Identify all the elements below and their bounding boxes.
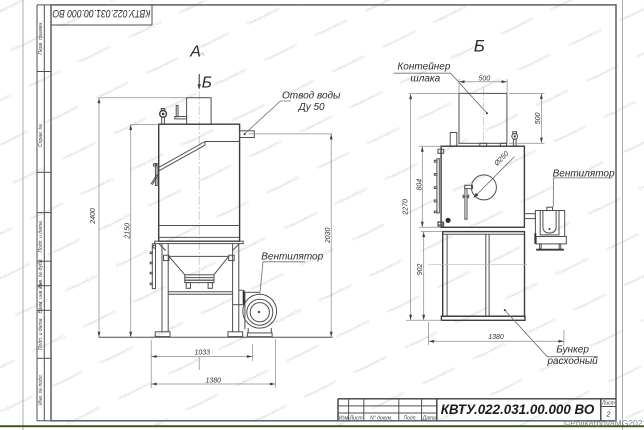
svg-text:1380: 1380 [206, 378, 222, 385]
svg-text:1380: 1380 [488, 334, 504, 341]
svg-text:шлака: шлака [410, 73, 440, 84]
svg-text:Лист: Лист [601, 401, 615, 407]
svg-text:А: А [189, 43, 201, 60]
svg-text:Контейнер: Контейнер [397, 62, 450, 73]
svg-text:500: 500 [535, 112, 542, 124]
svg-text:Ду 50: Ду 50 [298, 102, 325, 113]
svg-text:2270: 2270 [402, 199, 409, 216]
svg-text:1033: 1033 [195, 350, 211, 357]
svg-text:Перв. примен.: Перв. примен. [38, 21, 44, 54]
svg-text:902: 902 [417, 263, 424, 275]
svg-text:Отвод воды: Отвод воды [282, 90, 341, 101]
svg-text:Лист: Лист [349, 415, 363, 421]
svg-text:N° докум.: N° докум. [370, 415, 392, 421]
svg-text:КВТУ.022.031.00.000 ВО: КВТУ.022.031.00.000 ВО [52, 7, 150, 19]
svg-text:2030: 2030 [325, 228, 332, 245]
svg-text:Подп.: Подп. [404, 415, 417, 421]
svg-text:©PolikarpovaMG2021: ©PolikarpovaMG2021 [564, 418, 644, 428]
svg-text:Подп. и дата: Подп. и дата [38, 221, 44, 253]
svg-text:Изм: Изм [339, 415, 349, 421]
svg-text:расходный: расходный [546, 356, 598, 367]
svg-text:2400: 2400 [90, 208, 97, 225]
svg-text:Справ. №: Справ. № [38, 124, 44, 147]
svg-text:Дата: Дата [422, 415, 436, 421]
svg-text:2150: 2150 [125, 223, 132, 240]
svg-text:КВТУ.022.031.00.000 ВО: КВТУ.022.031.00.000 ВО [441, 402, 595, 417]
svg-text:Вентилятор: Вентилятор [261, 252, 323, 263]
svg-text:500: 500 [478, 75, 490, 82]
svg-text:(1): (1) [200, 52, 204, 56]
svg-text:804: 804 [416, 179, 423, 191]
svg-text:Б: Б [202, 75, 212, 92]
svg-text:Бункер: Бункер [556, 344, 589, 355]
svg-text:Взам. инв. №: Взам. инв. № [38, 282, 44, 314]
svg-text:Инв. № подл.: Инв. № подл. [38, 374, 44, 405]
svg-text:Подп. и дата: Подп. и дата [38, 318, 44, 350]
svg-text:Б: Б [474, 37, 485, 56]
